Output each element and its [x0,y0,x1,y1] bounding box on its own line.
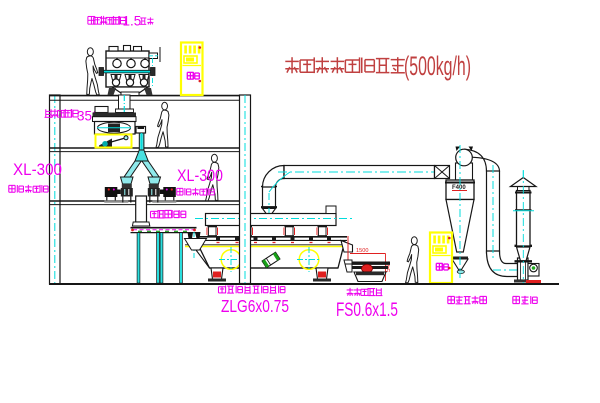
svg-text:XL-300: XL-300 [177,166,223,185]
svg-text:(500kg/h): (500kg/h) [404,51,471,81]
svg-text:FS0.6x1.5: FS0.6x1.5 [336,300,398,321]
svg-text:1500: 1500 [356,248,368,254]
svg-text:XL-300: XL-300 [13,160,62,179]
svg-text:ZLG6x0.75: ZLG6x0.75 [221,296,289,316]
svg-text:1.5: 1.5 [123,14,142,29]
